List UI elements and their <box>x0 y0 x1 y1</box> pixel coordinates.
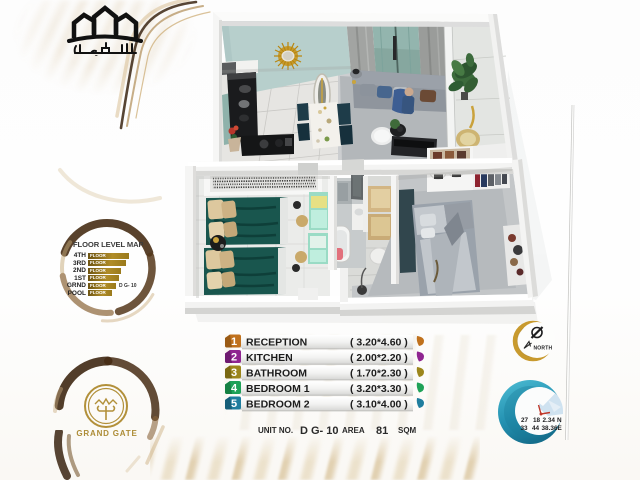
svg-text:BEDROOM 1: BEDROOM 1 <box>246 383 310 395</box>
svg-text:D G- 10: D G- 10 <box>300 425 339 437</box>
svg-text:UNIT NO.: UNIT NO. <box>258 426 293 435</box>
svg-text:2.34: 2.34 <box>543 417 556 424</box>
svg-text:SQM: SQM <box>398 426 417 435</box>
svg-text:NORTH: NORTH <box>534 346 553 352</box>
svg-text:E: E <box>558 425 563 432</box>
svg-text:81: 81 <box>376 425 388 437</box>
svg-text:3: 3 <box>231 367 237 379</box>
svg-text:( 3.20*4.60 ): ( 3.20*4.60 ) <box>350 337 408 349</box>
svg-text:( 3.10*4.00 ): ( 3.10*4.00 ) <box>350 399 408 411</box>
svg-text:( 3.20*3.30 ): ( 3.20*3.30 ) <box>350 383 408 395</box>
svg-text:18: 18 <box>533 417 541 424</box>
svg-text:BATHROOM: BATHROOM <box>246 368 307 380</box>
svg-text:44: 44 <box>532 425 540 432</box>
svg-text:N: N <box>557 417 562 424</box>
svg-text:( 2.00*2.20 ): ( 2.00*2.20 ) <box>350 352 408 364</box>
svg-text:38.36: 38.36 <box>542 425 558 432</box>
svg-text:1: 1 <box>231 336 237 348</box>
svg-text:4: 4 <box>231 383 238 395</box>
svg-text:AREA: AREA <box>342 426 365 435</box>
svg-text:BEDROOM 2: BEDROOM 2 <box>246 399 310 411</box>
svg-text:27: 27 <box>521 417 529 424</box>
svg-text:33: 33 <box>521 425 529 432</box>
svg-text:5: 5 <box>231 398 237 410</box>
svg-text:( 1.70*2.30 ): ( 1.70*2.30 ) <box>350 368 408 380</box>
svg-text:KITCHEN: KITCHEN <box>246 352 293 364</box>
svg-text:2: 2 <box>231 352 237 364</box>
svg-text:RECEPTION: RECEPTION <box>246 337 307 349</box>
